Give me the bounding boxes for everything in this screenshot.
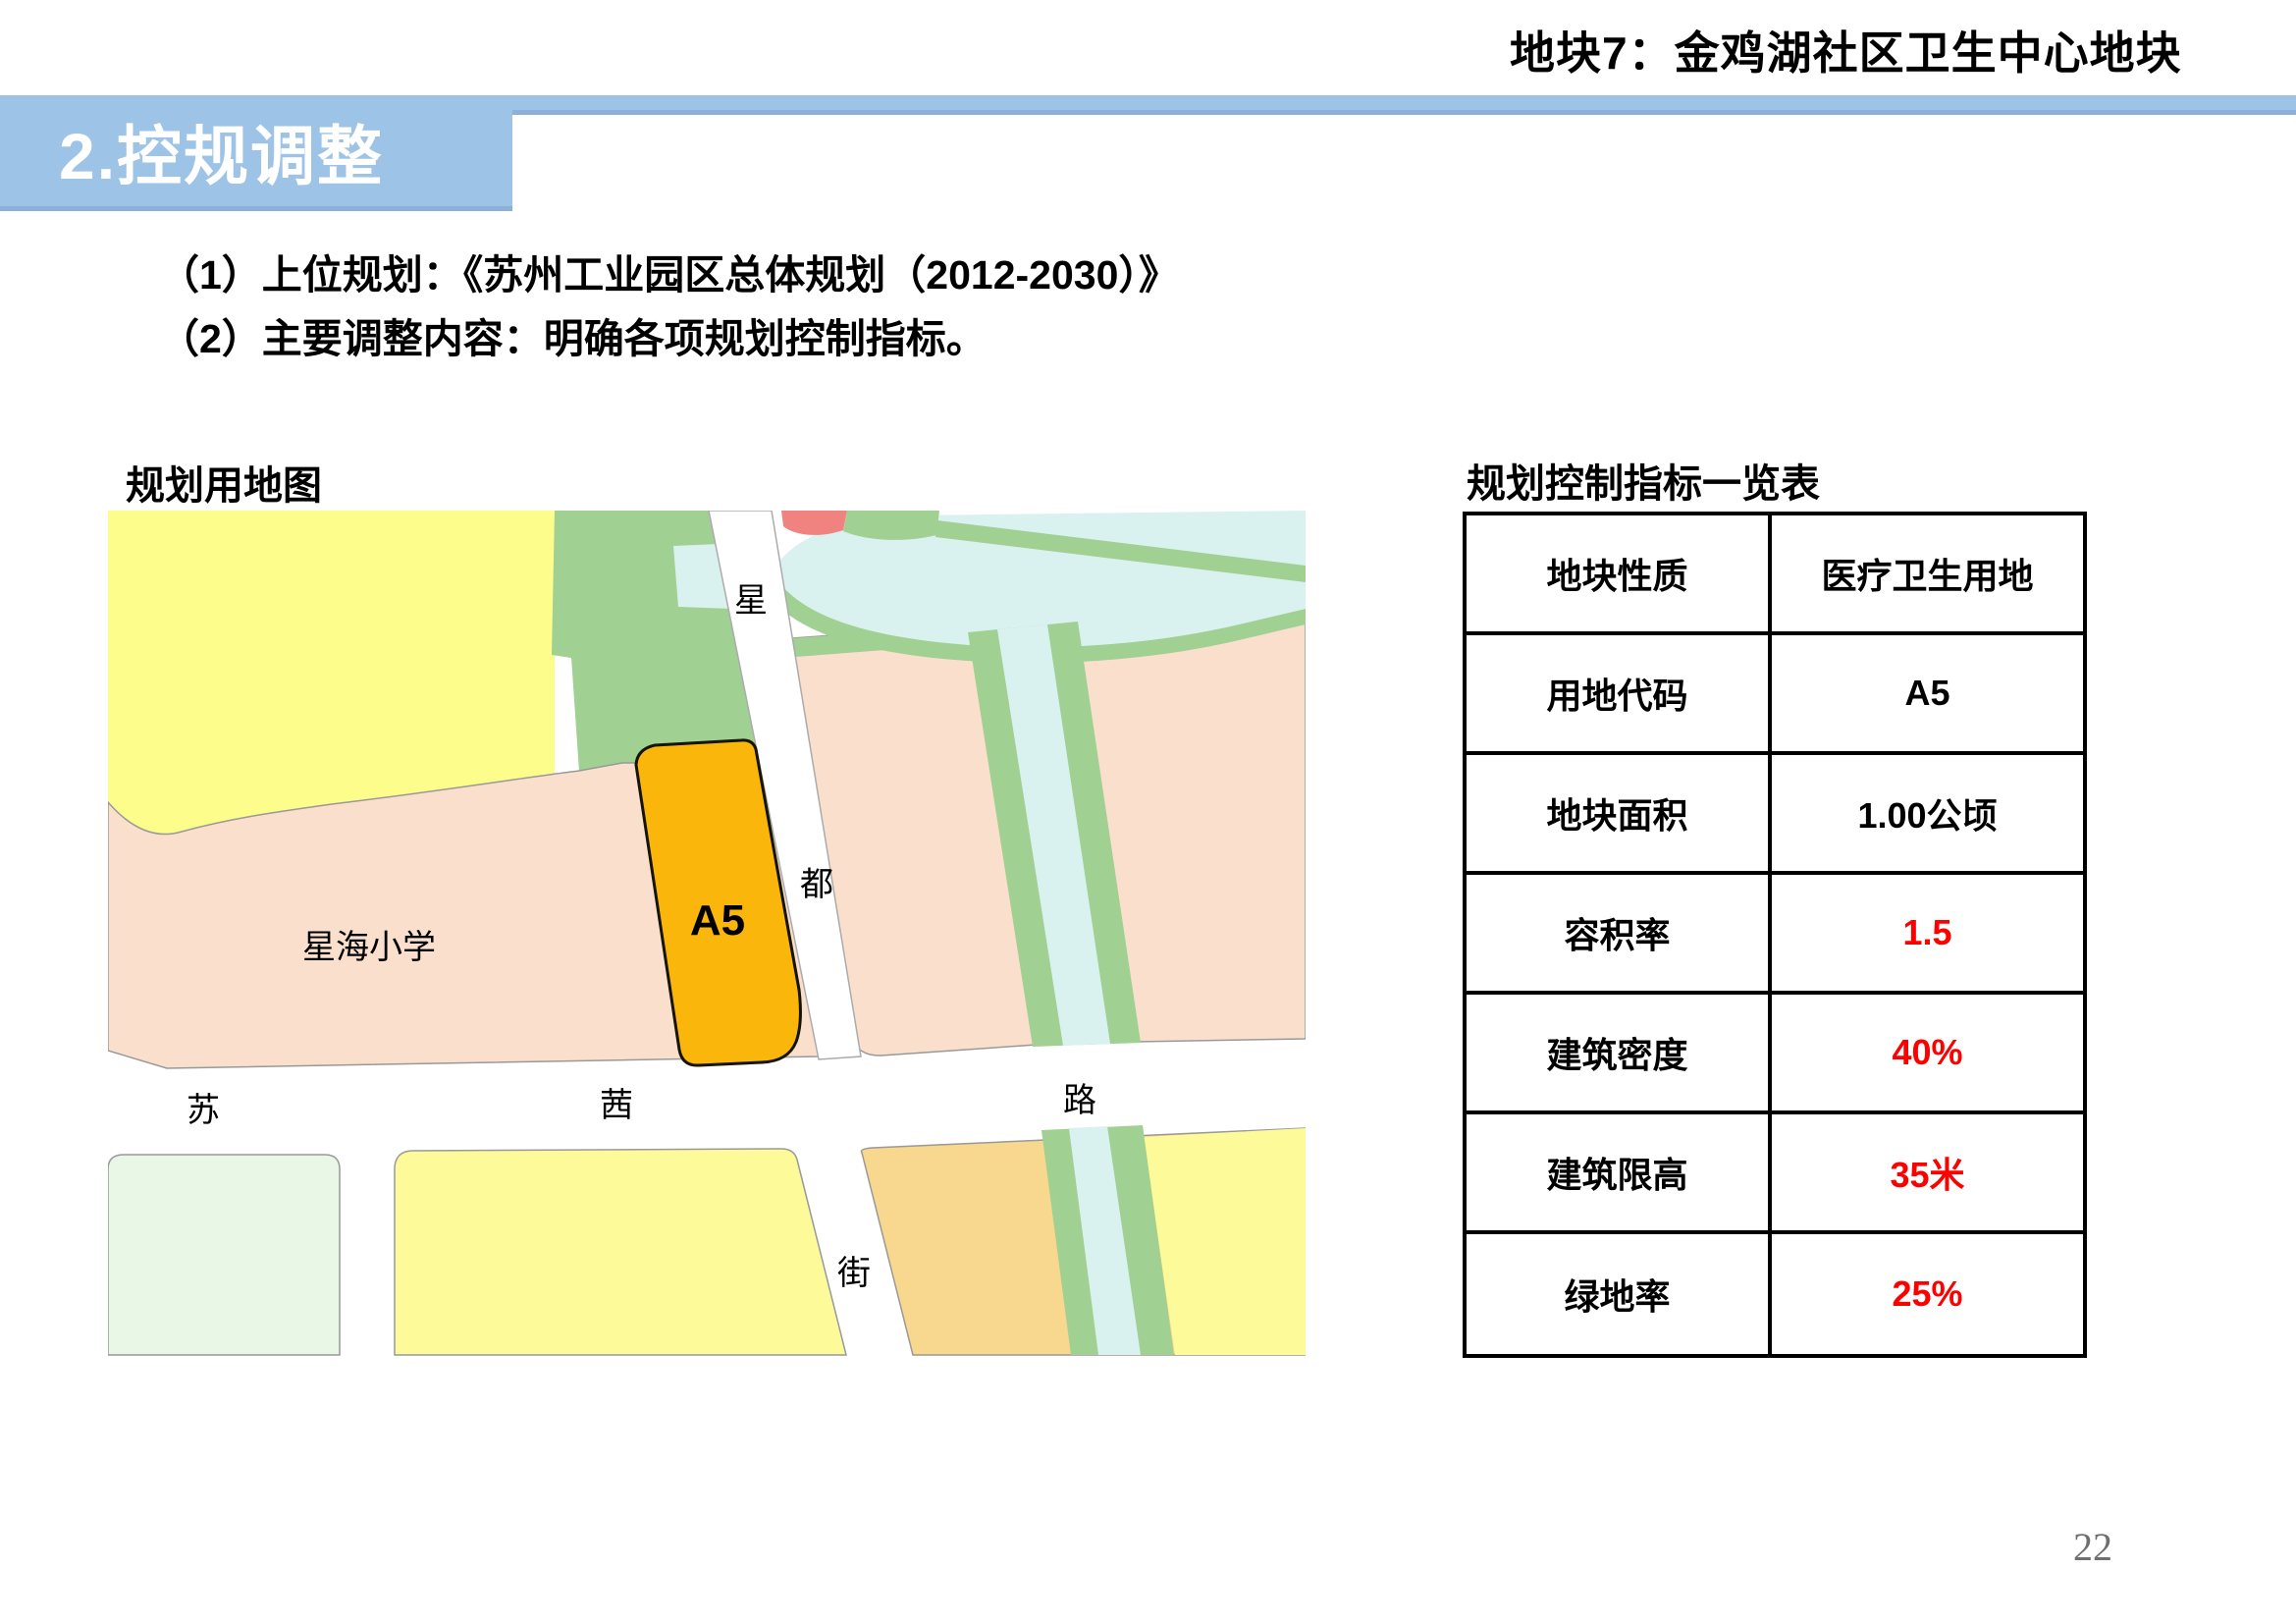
- green-top-strip: [843, 511, 939, 540]
- table-row-value: 40%: [1772, 995, 2083, 1114]
- section-header-bar: 2.控规调整: [0, 95, 512, 211]
- road-label-jie: 街: [837, 1255, 871, 1292]
- table-row-label: 绿地率: [1467, 1234, 1772, 1354]
- zone-mint-block: [108, 1155, 340, 1355]
- table-row-label: 建筑密度: [1467, 995, 1772, 1114]
- road-label-su: 苏: [187, 1092, 220, 1129]
- table-row-value: 医疗卫生用地: [1772, 515, 2083, 635]
- table-row-label: 地块性质: [1467, 515, 1772, 635]
- section-heading: 2.控规调整: [0, 104, 384, 198]
- plot-a5-label: A5: [690, 896, 745, 945]
- page-title: 地块7：金鸡湖社区卫生中心地块: [1510, 18, 2182, 82]
- zone-south-yellow-block: [395, 1149, 846, 1355]
- red-parcel: [781, 511, 847, 535]
- table-row-value: 35米: [1772, 1114, 2083, 1234]
- table-row-value: A5: [1772, 635, 2083, 755]
- table-row-label: 用地代码: [1467, 635, 1772, 755]
- table-row-label: 地块面积: [1467, 755, 1772, 875]
- school-label: 星海小学: [302, 929, 436, 966]
- table-row-value: 1.00公顷: [1772, 755, 2083, 875]
- intro-line-1: （1）上位规划：《苏州工业园区总体规划（2012-2030）》: [159, 242, 1179, 300]
- table-row-label: 建筑限高: [1467, 1114, 1772, 1234]
- road-label-du: 都: [800, 866, 833, 903]
- intro-line-2: （2）主要调整内容：明确各项规划控制指标。: [159, 305, 987, 364]
- table-row-label: 容积率: [1467, 875, 1772, 995]
- land-use-map: 星 都 街 苏 茜 路 A5 星海小学: [108, 511, 1306, 1365]
- road-label-qian: 茜: [600, 1087, 633, 1124]
- table-row-value: 1.5: [1772, 875, 2083, 995]
- page-number: 22: [2073, 1524, 2112, 1570]
- table-caption: 规划控制指标一览表: [1467, 452, 1820, 509]
- road-label-star: 星: [734, 582, 768, 620]
- slide: 地块7：金鸡湖社区卫生中心地块 2.控规调整 （1）上位规划：《苏州工业园区总体…: [0, 0, 2296, 1624]
- road-label-lu: 路: [1063, 1082, 1096, 1119]
- map-caption: 规划用地图: [126, 454, 322, 511]
- indicator-table: 地块性质 医疗卫生用地 用地代码 A5 地块面积 1.00公顷 容积率 1.5 …: [1463, 512, 2087, 1358]
- table-row-value: 25%: [1772, 1234, 2083, 1354]
